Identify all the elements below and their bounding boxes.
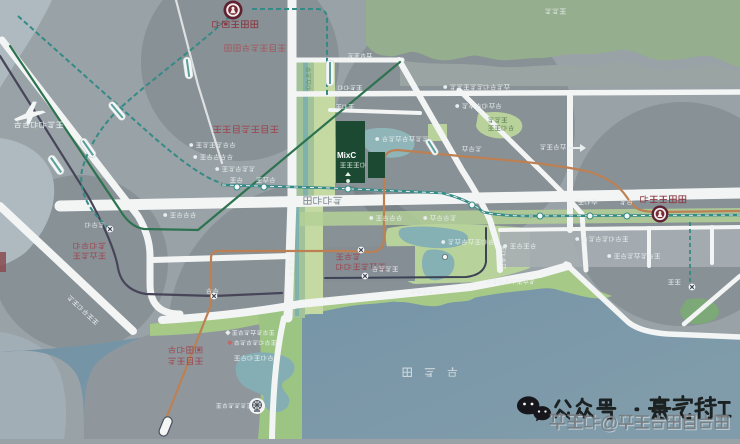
svg-text:MixC: MixC (337, 151, 356, 160)
svg-text:@: @ (600, 413, 618, 433)
